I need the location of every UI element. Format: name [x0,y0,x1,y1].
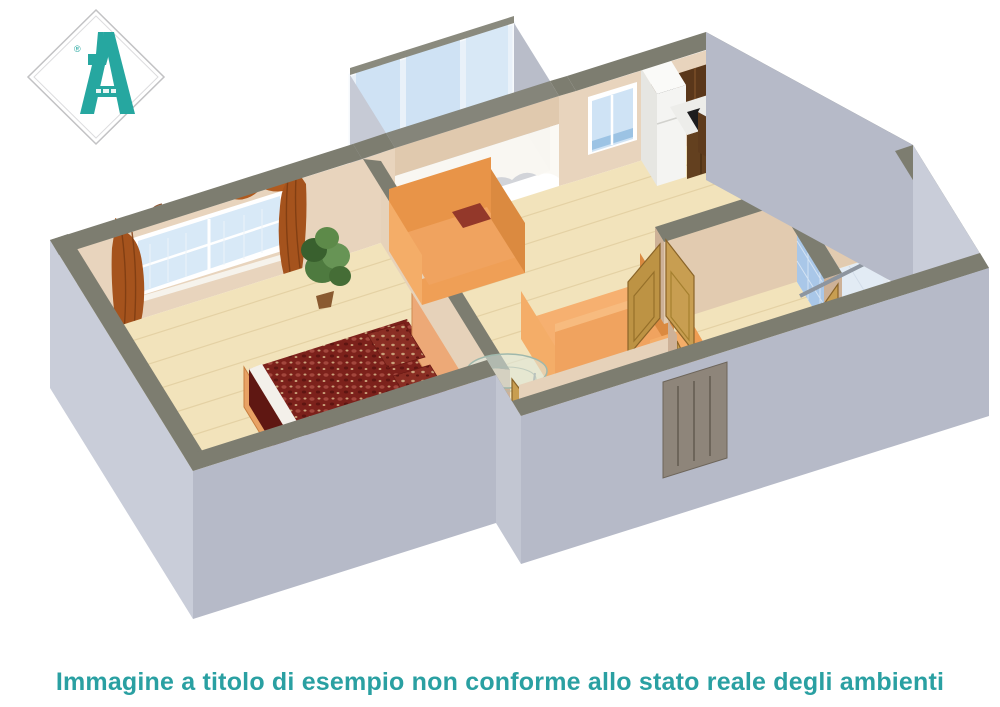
entry-door [663,362,727,478]
registered-mark: ® [74,44,81,54]
disclaimer-caption: Immagine a titolo di esempio non conform… [0,668,1000,697]
fridge [641,59,686,186]
agency-logo: ® [8,2,184,152]
logo-fine-print [96,89,116,93]
placeholder-floorplan-image: ® Immagine a titolo di esempio non confo… [0,0,1000,707]
